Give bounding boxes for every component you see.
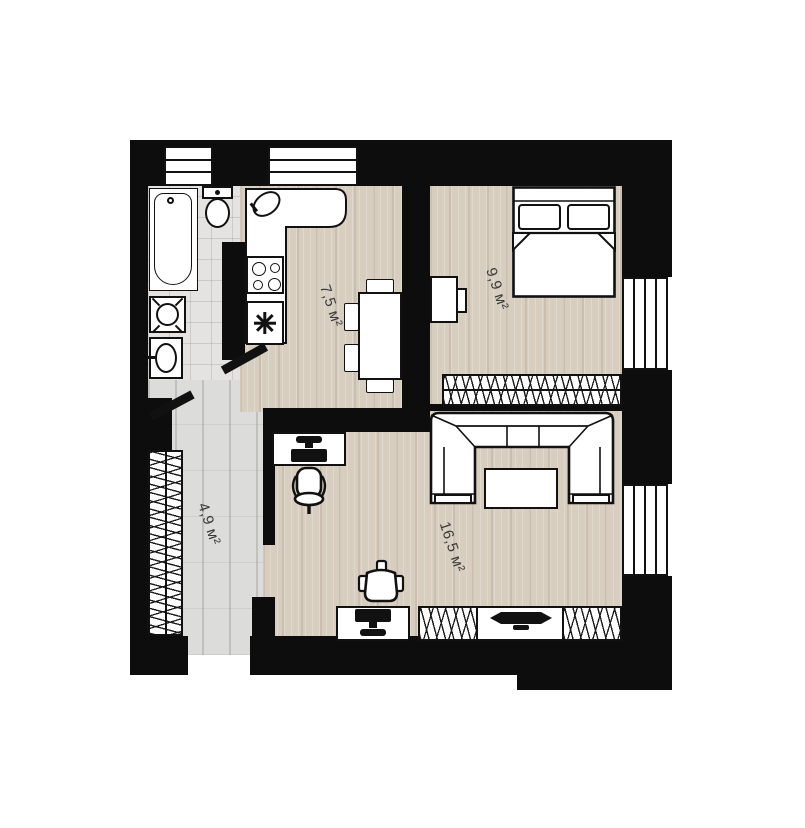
dining-chair <box>344 344 359 372</box>
wall-right-upper <box>622 140 672 277</box>
kitchen-window <box>268 146 358 186</box>
wardrobe-rail <box>444 389 620 391</box>
monitor-icon <box>289 436 329 463</box>
wall-right-lower <box>622 576 672 690</box>
dining-chair <box>344 303 359 331</box>
window-mullion <box>633 279 635 368</box>
dining-chair <box>366 379 394 393</box>
wall-bathroom-kitchen <box>222 242 245 360</box>
sink-basin-icon <box>155 343 177 373</box>
window-mullion <box>633 486 635 574</box>
bathtub-drain-icon <box>167 197 174 204</box>
wall-kitchen-bedroom <box>402 186 430 410</box>
armchair <box>357 559 405 603</box>
wardrobe-hallway <box>148 450 183 636</box>
window-mullion <box>644 486 646 574</box>
burner-icon <box>253 280 263 290</box>
wall-bottom-left <box>130 636 188 675</box>
window-mullion <box>166 159 211 161</box>
toilet-bowl <box>205 198 230 228</box>
wardrobe-bedroom <box>442 374 622 406</box>
window-mullion <box>655 279 657 368</box>
tv-stand-cabinet <box>562 608 620 639</box>
double-bed <box>512 186 616 298</box>
dining-chair <box>366 279 394 293</box>
window-mullion <box>655 486 657 574</box>
bathroom-window <box>164 146 213 186</box>
window-mullion <box>644 279 646 368</box>
bathtub <box>149 188 198 291</box>
appliance-star-unit <box>246 301 284 345</box>
burner-icon <box>252 262 266 276</box>
bedroom-window <box>622 277 668 370</box>
window-mullion <box>166 171 211 173</box>
coffee-table <box>484 468 558 509</box>
sink-tap-icon <box>147 356 156 359</box>
window-mullion <box>270 171 356 173</box>
burner-icon <box>268 278 281 291</box>
tv-icon <box>489 611 553 633</box>
tv-stand-cabinet <box>420 608 478 639</box>
wall-right-middle <box>622 370 672 484</box>
dining-table <box>358 292 402 380</box>
wall-hallway-living-stub <box>252 597 275 637</box>
wardrobe-rail <box>165 452 167 634</box>
floor-plan: 7,5 м² 9,9 м² 16,5 м² 4,9 м² <box>0 0 805 828</box>
office-chair <box>288 464 330 516</box>
toilet-button-icon <box>215 190 220 195</box>
living-room-window <box>622 484 668 576</box>
burner-icon <box>270 263 280 273</box>
wall-bottom <box>250 636 662 675</box>
bathtub-basin <box>154 193 192 285</box>
tv-screen-bedroom <box>456 288 467 313</box>
tv-console-bedroom <box>430 276 458 323</box>
stove <box>246 256 284 294</box>
window-mullion <box>270 159 356 161</box>
wall-kitchen-living <box>263 408 430 432</box>
monitor-icon <box>353 609 393 636</box>
